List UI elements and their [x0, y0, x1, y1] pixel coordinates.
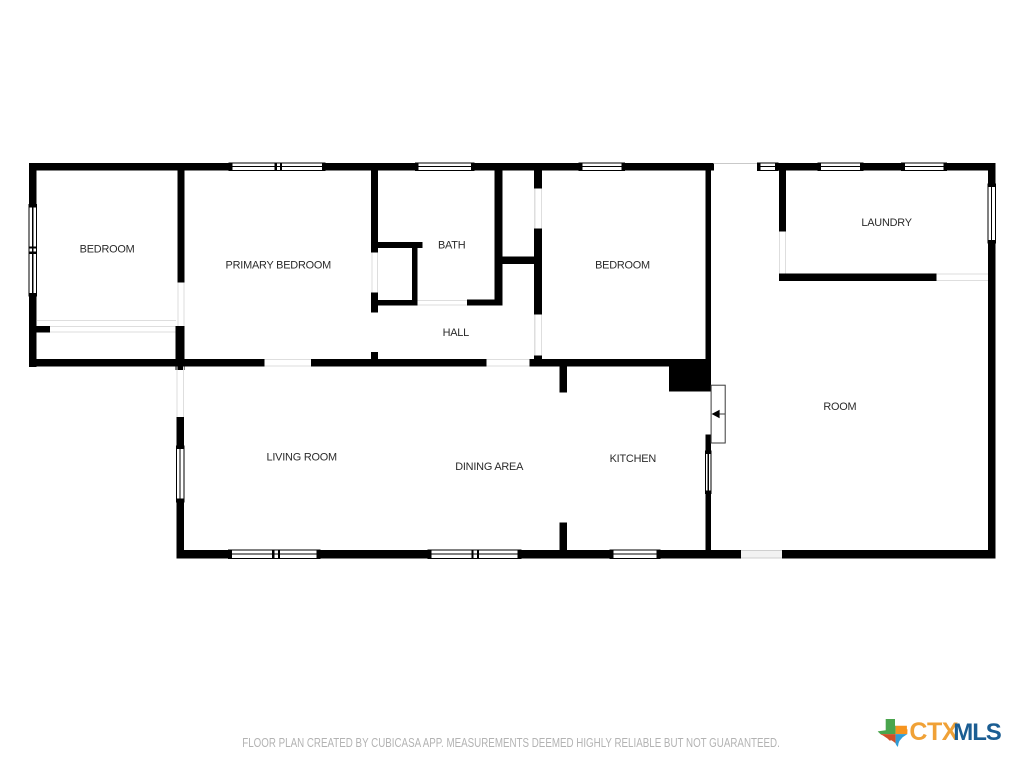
- svg-text:KITCHEN: KITCHEN: [610, 453, 656, 465]
- svg-text:MLS: MLS: [953, 719, 1001, 746]
- svg-text:BEDROOM: BEDROOM: [595, 260, 650, 272]
- svg-text:CTX: CTX: [909, 718, 958, 746]
- svg-text:LAUNDRY: LAUNDRY: [861, 217, 912, 229]
- svg-text:BEDROOM: BEDROOM: [80, 244, 135, 256]
- svg-text:FLOOR PLAN CREATED BY CUBICASA: FLOOR PLAN CREATED BY CUBICASA APP. MEAS…: [242, 737, 780, 751]
- svg-text:PRIMARY BEDROOM: PRIMARY BEDROOM: [226, 260, 332, 272]
- svg-text:HALL: HALL: [443, 327, 470, 339]
- svg-text:DINING AREA: DINING AREA: [455, 461, 524, 473]
- svg-text:LIVING ROOM: LIVING ROOM: [266, 452, 337, 464]
- svg-text:BATH: BATH: [438, 240, 465, 252]
- svg-text:ROOM: ROOM: [823, 401, 856, 413]
